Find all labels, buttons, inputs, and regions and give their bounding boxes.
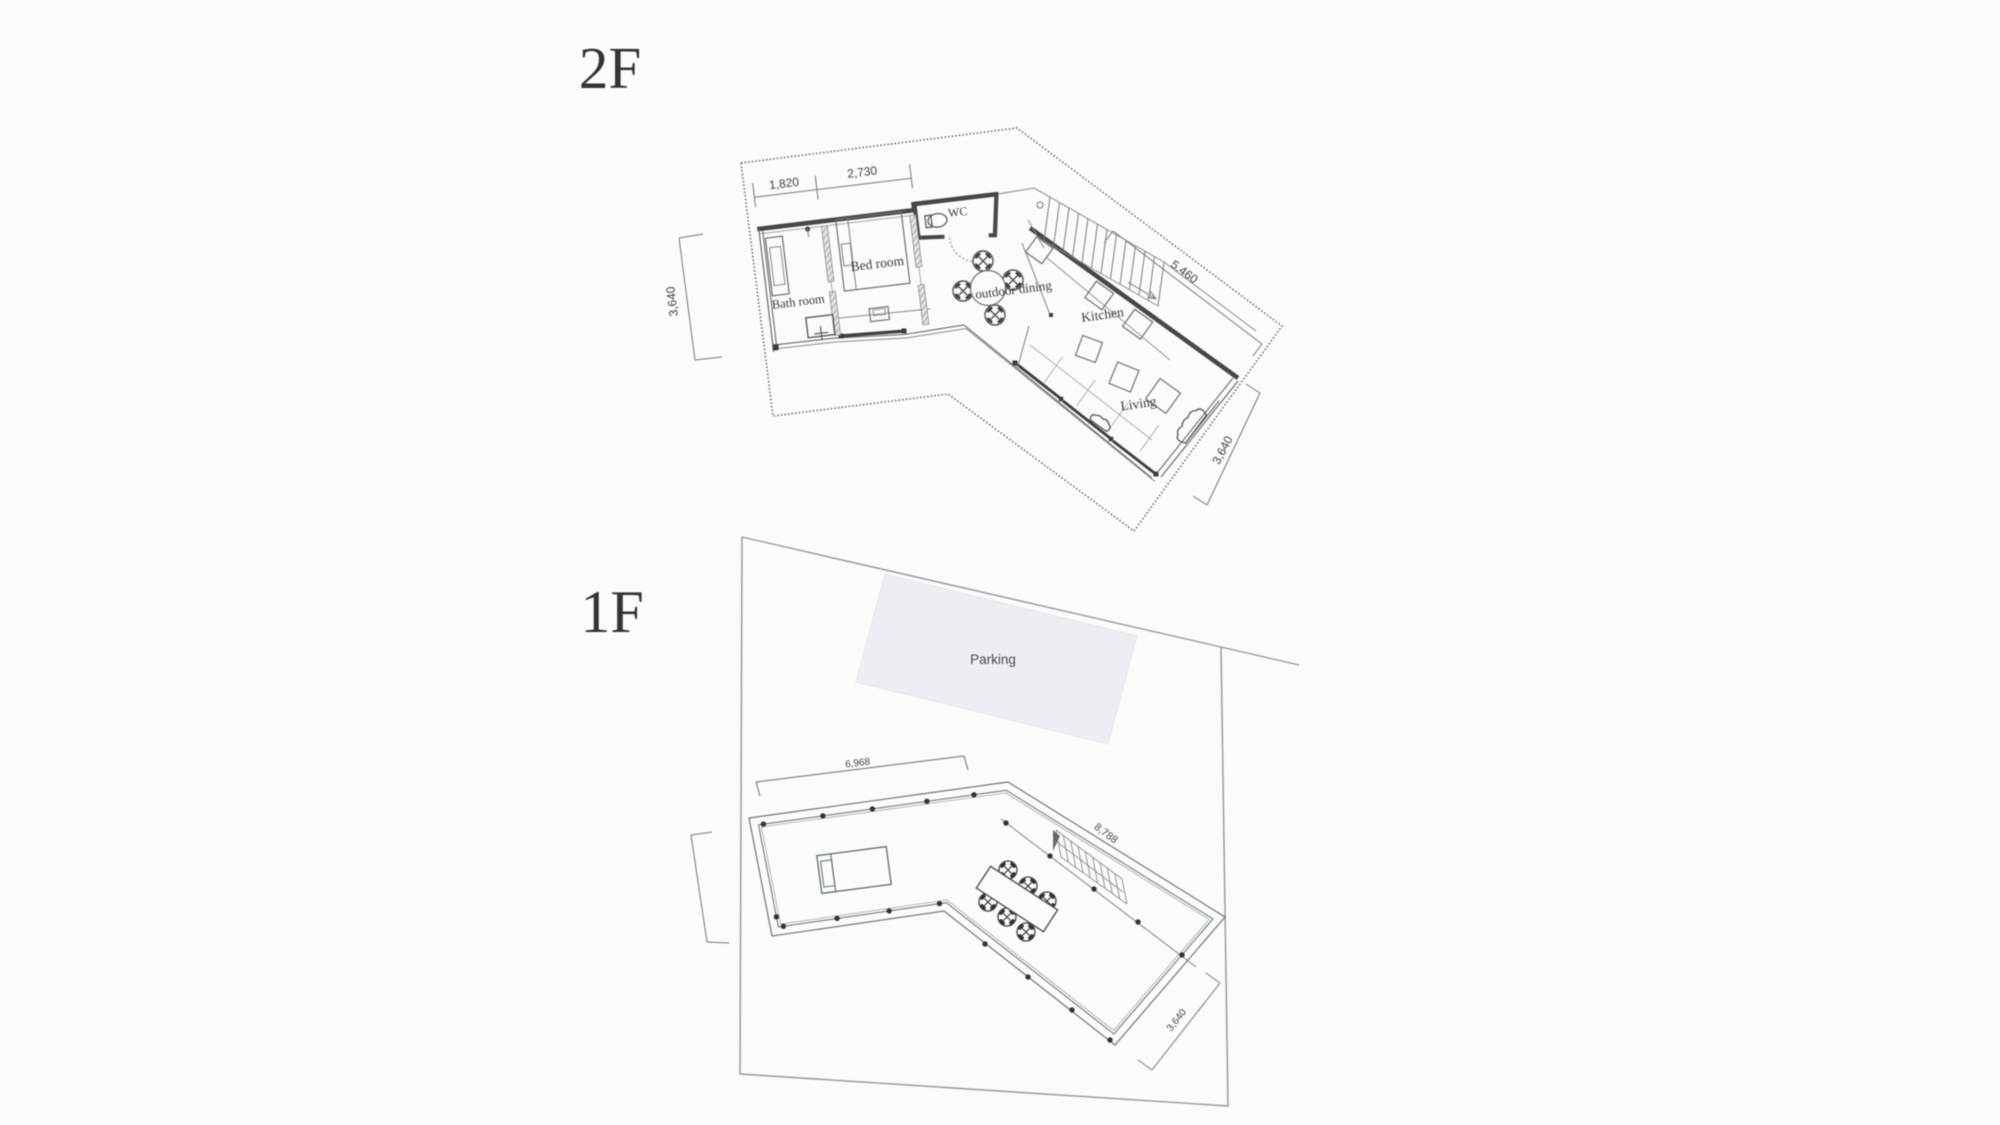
svg-text:WC: WC	[947, 204, 968, 220]
svg-text:1F: 1F	[580, 579, 643, 645]
svg-text:2F: 2F	[579, 35, 641, 101]
svg-text:Parking: Parking	[970, 652, 1016, 667]
